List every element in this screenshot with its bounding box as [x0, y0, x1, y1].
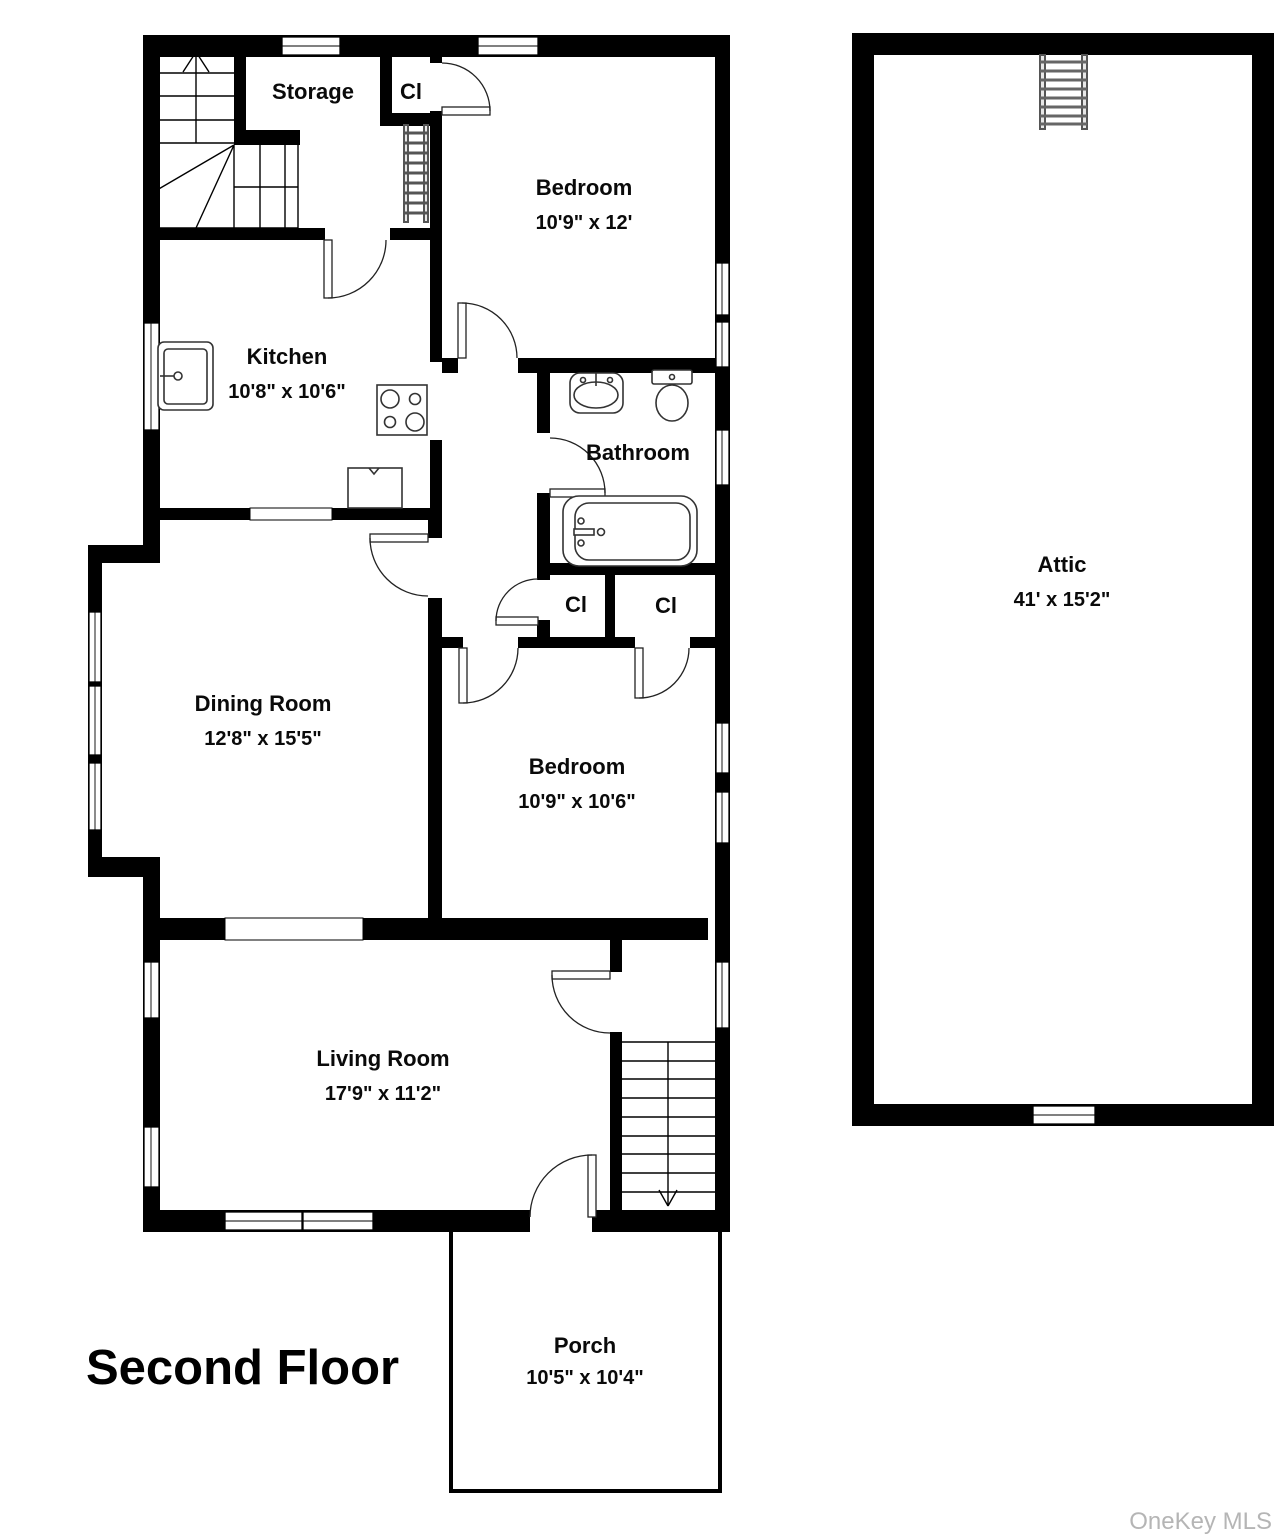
room-label-closet-bedroom: Cl: [655, 593, 677, 618]
staircase-down: [622, 1042, 715, 1206]
room-dims-attic: 41' x 15'2": [1014, 589, 1111, 611]
cased-openings: [225, 508, 363, 940]
attic-window: [1033, 1106, 1095, 1124]
room-dims-bedroom-2: 10'9" x 10'6": [518, 791, 635, 813]
room-label-living-room: Living Room: [316, 1046, 449, 1071]
bathtub-icon: [563, 496, 697, 566]
kitchen-sink-icon: [158, 342, 213, 410]
page-title: Second Floor: [86, 1341, 399, 1395]
room-dims-bedroom-1: 10'9" x 12': [536, 212, 633, 234]
room-label-bathroom: Bathroom: [586, 440, 690, 465]
room-dims-dining-room: 12'8" x 15'5": [204, 728, 321, 750]
floor-plan-page: Storage Cl Bedroom 10'9" x 12' Kitchen 1…: [0, 0, 1277, 1536]
room-label-bedroom-2: Bedroom: [529, 754, 626, 779]
room-dims-kitchen: 10'8" x 10'6": [228, 381, 345, 403]
bathroom-sink-icon: [570, 373, 623, 413]
room-label-attic: Attic: [1038, 552, 1087, 577]
porch-outline: [451, 1232, 720, 1491]
room-label-storage: Storage: [272, 79, 354, 104]
room-label-kitchen: Kitchen: [247, 344, 328, 369]
attic-access-ladder-icon: [404, 125, 428, 222]
watermark: OneKey MLS: [1129, 1508, 1272, 1535]
room-dims-living-room: 17'9" x 11'2": [325, 1083, 441, 1105]
room-label-bedroom-1: Bedroom: [536, 175, 633, 200]
toilet-icon: [652, 370, 692, 421]
room-label-closet-hall: Cl: [565, 592, 587, 617]
room-label-closet-top: Cl: [400, 79, 422, 104]
kitchen-counter: [348, 468, 402, 508]
room-label-dining-room: Dining Room: [195, 691, 332, 716]
room-dims-porch: 10'5" x 10'4": [526, 1367, 643, 1389]
attic-walls: [852, 33, 1274, 1126]
attic-ladder-icon: [1040, 55, 1087, 129]
stove-icon: [377, 385, 427, 435]
room-label-porch: Porch: [554, 1333, 616, 1358]
floor-plan-svg: Storage Cl Bedroom 10'9" x 12' Kitchen 1…: [0, 0, 1277, 1536]
